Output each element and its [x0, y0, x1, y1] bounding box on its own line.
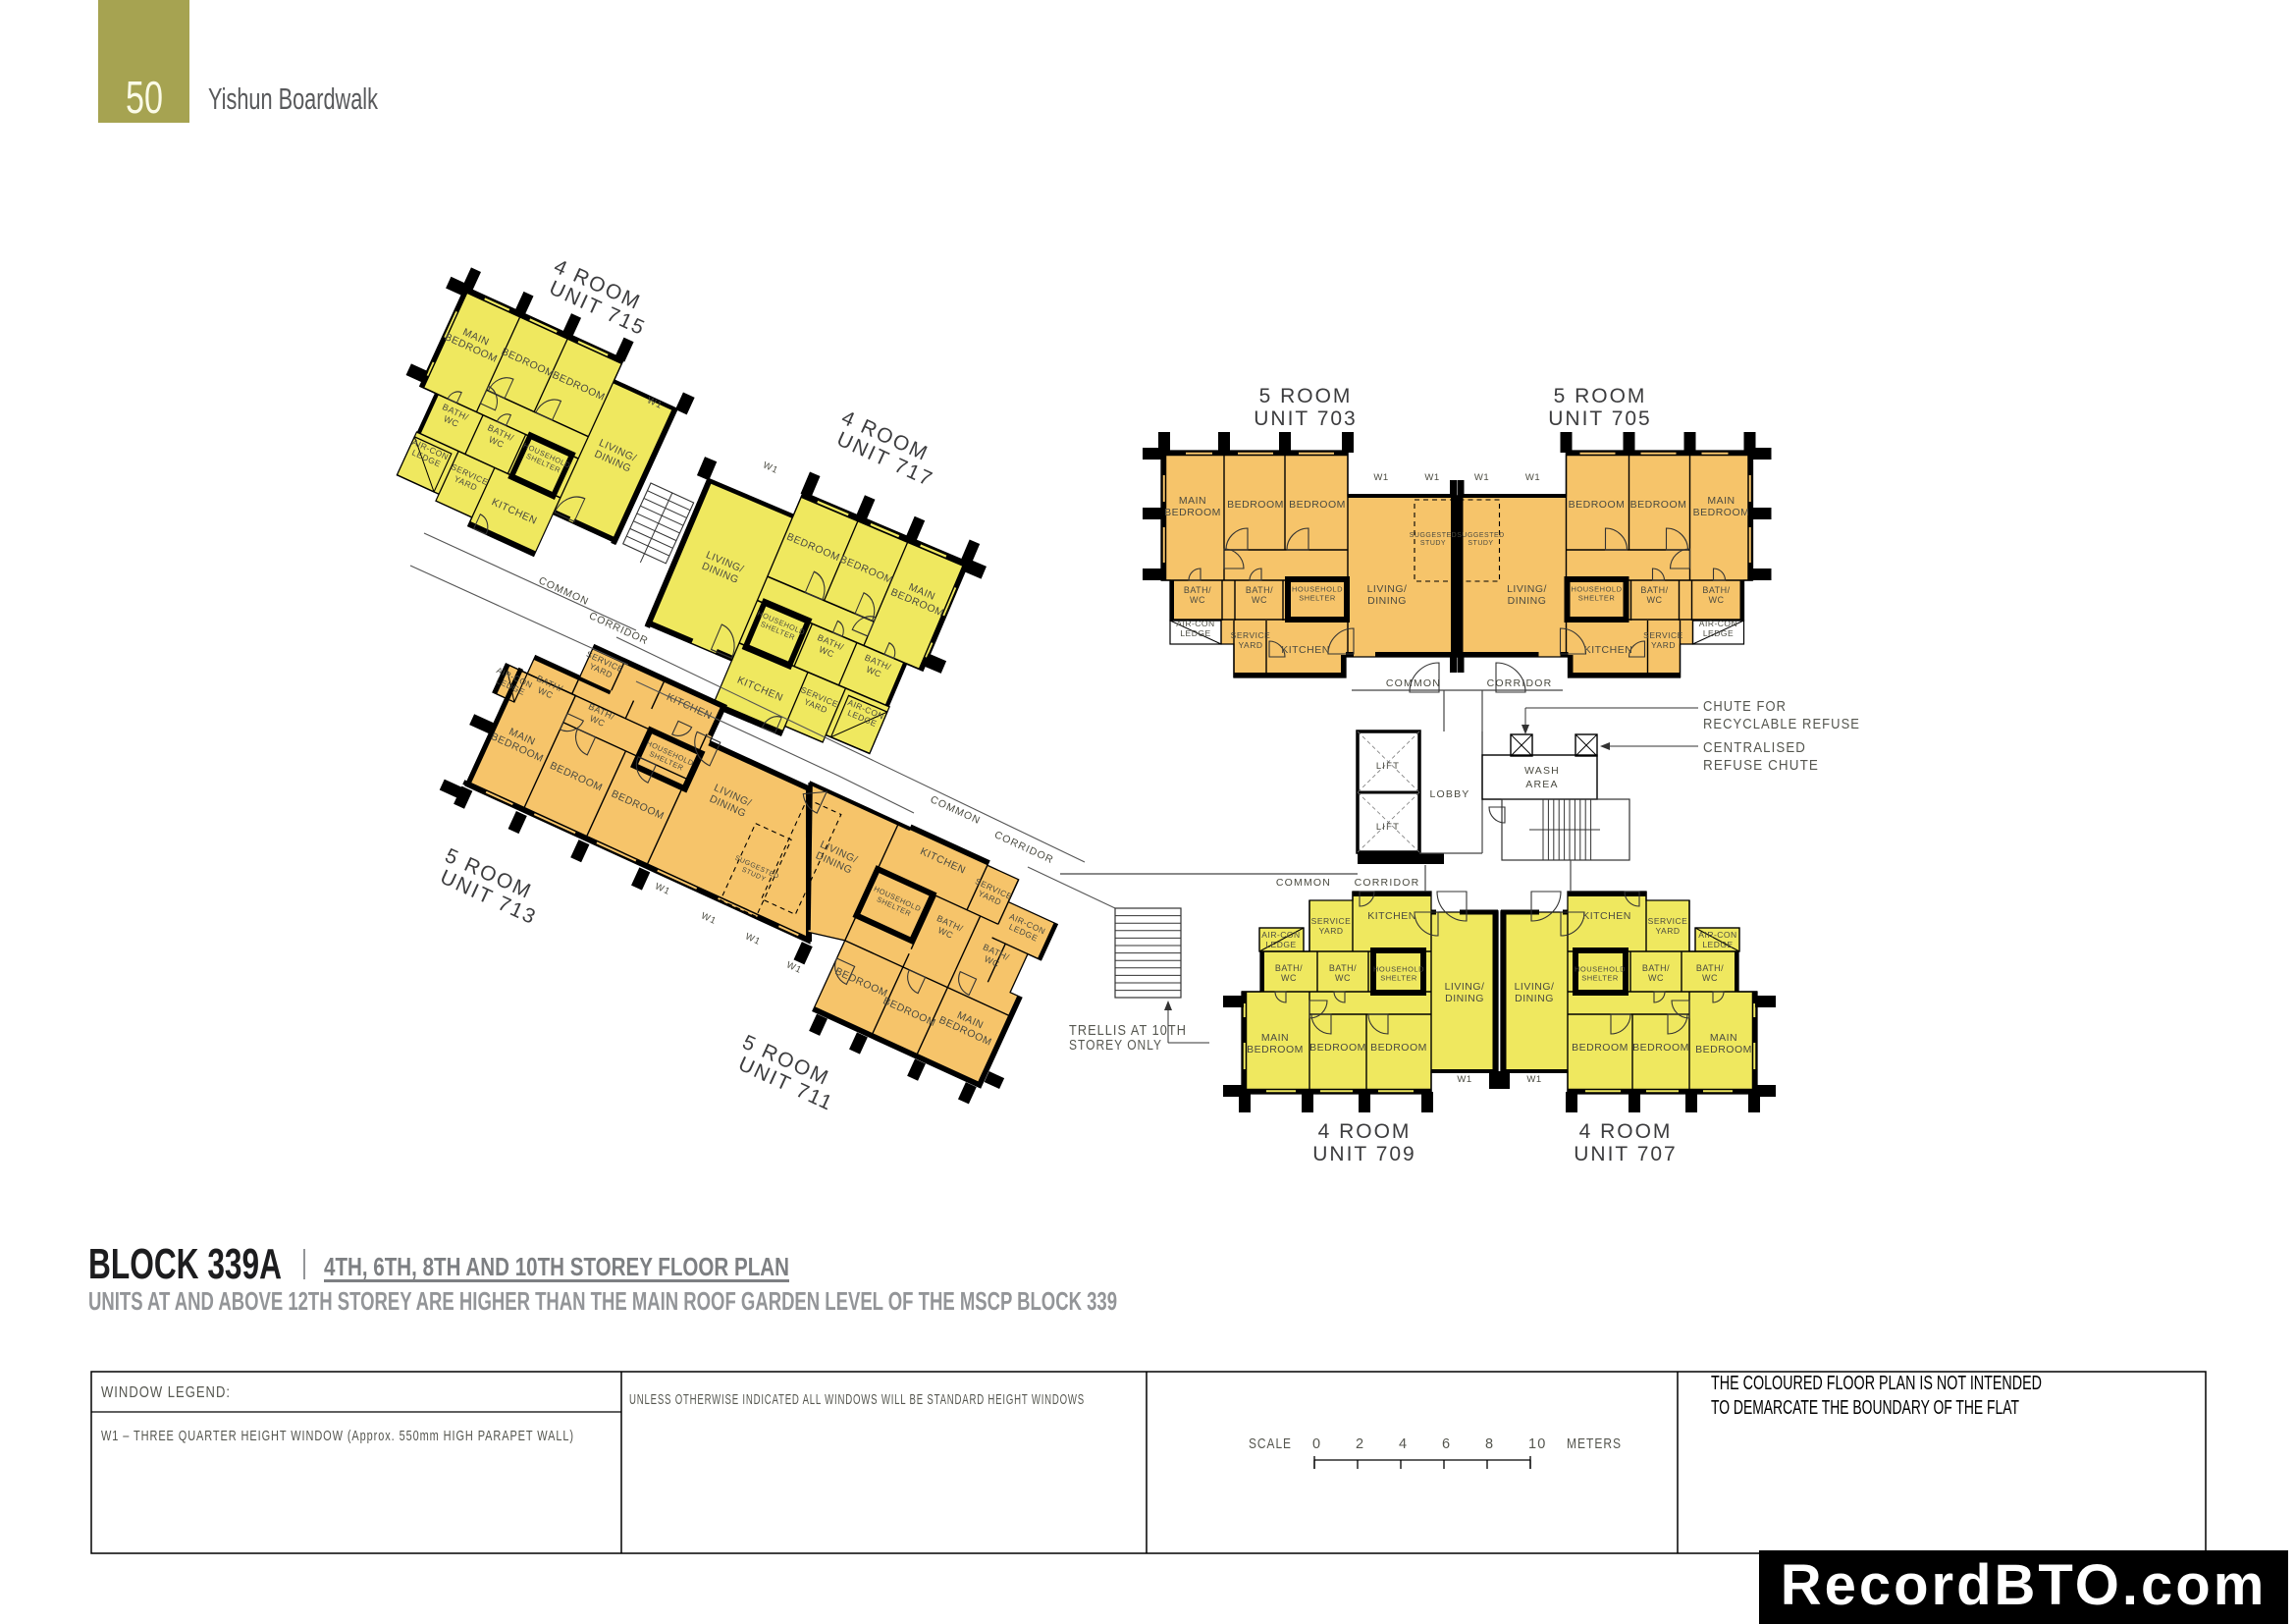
svg-text:5 ROOM: 5 ROOM [1259, 385, 1353, 407]
svg-text:MAIN: MAIN [1710, 1032, 1737, 1044]
svg-text:2: 2 [1356, 1436, 1364, 1452]
svg-text:KITCHEN: KITCHEN [1367, 910, 1416, 922]
svg-text:5 ROOM: 5 ROOM [1554, 385, 1647, 407]
svg-text:TRELLIS AT 10TH: TRELLIS AT 10TH [1069, 1023, 1187, 1039]
svg-text:UNIT 703: UNIT 703 [1254, 407, 1358, 430]
svg-text:50: 50 [126, 72, 163, 123]
svg-text:BATH/: BATH/ [1329, 963, 1357, 973]
svg-text:WC: WC [1281, 973, 1297, 983]
svg-text:W1: W1 [761, 460, 779, 476]
svg-text:AREA: AREA [1525, 779, 1558, 790]
svg-text:UNIT 709: UNIT 709 [1312, 1143, 1416, 1165]
svg-text:YARD: YARD [1651, 640, 1676, 650]
svg-text:LEDGE: LEDGE [1703, 628, 1734, 638]
svg-text:LIVING/: LIVING/ [1507, 583, 1547, 595]
svg-text:W1: W1 [1457, 1074, 1471, 1085]
svg-text:WC: WC [1709, 595, 1725, 605]
svg-text:REFUSE CHUTE: REFUSE CHUTE [1703, 758, 1819, 774]
svg-text:YARD: YARD [1319, 926, 1344, 936]
svg-text:BEDROOM: BEDROOM [1632, 1042, 1689, 1054]
svg-text:LIVING/: LIVING/ [1367, 583, 1408, 595]
svg-text:BEDROOM: BEDROOM [1309, 1042, 1366, 1054]
svg-text:W1: W1 [1474, 472, 1489, 483]
svg-text:WINDOW LEGEND:: WINDOW LEGEND: [101, 1384, 231, 1401]
svg-text:CORRIDOR: CORRIDOR [1355, 877, 1420, 889]
svg-text:6: 6 [1442, 1436, 1451, 1452]
svg-text:4 ROOM: 4 ROOM [1579, 1120, 1673, 1143]
svg-text:UNIT 705: UNIT 705 [1548, 407, 1652, 430]
svg-text:BEDROOM: BEDROOM [1695, 1044, 1752, 1056]
svg-text:RECYCLABLE REFUSE: RECYCLABLE REFUSE [1703, 717, 1860, 732]
svg-text:W1: W1 [699, 910, 718, 927]
svg-text:MAIN: MAIN [1261, 1032, 1289, 1044]
svg-text:AIR-CON: AIR-CON [1698, 930, 1736, 940]
svg-text:4TH, 6TH, 8TH AND 10TH STOREY: 4TH, 6TH, 8TH AND 10TH STOREY FLOOR PLAN [324, 1252, 789, 1281]
svg-text:YARD: YARD [1239, 640, 1263, 650]
svg-text:SHELTER: SHELTER [1380, 973, 1417, 982]
svg-text:CORRIDOR: CORRIDOR [992, 829, 1055, 866]
svg-text:BATH/: BATH/ [1184, 585, 1211, 595]
svg-text:W1: W1 [1526, 1074, 1541, 1085]
svg-text:WC: WC [1648, 973, 1664, 983]
svg-text:DINING: DINING [1508, 595, 1547, 607]
svg-text:STOREY ONLY: STOREY ONLY [1069, 1038, 1162, 1054]
svg-text:THE COLOURED FLOOR PLAN IS NOT: THE COLOURED FLOOR PLAN IS NOT INTENDED [1711, 1373, 2042, 1394]
svg-text:SERVICE: SERVICE [1643, 630, 1683, 640]
svg-text:WC: WC [1647, 595, 1663, 605]
svg-text:LEDGE: LEDGE [1180, 628, 1210, 638]
svg-text:SCALE: SCALE [1249, 1436, 1292, 1452]
svg-text:WC: WC [1702, 973, 1718, 983]
svg-text:SHELTER: SHELTER [1299, 593, 1336, 602]
svg-text:W1: W1 [1525, 472, 1540, 483]
svg-text:WC: WC [1252, 595, 1267, 605]
svg-text:SHELTER: SHELTER [1581, 973, 1619, 982]
svg-text:4 ROOM: 4 ROOM [1318, 1120, 1412, 1143]
svg-text:UNIT 707: UNIT 707 [1574, 1143, 1678, 1165]
svg-text:CENTRALISED: CENTRALISED [1703, 740, 1806, 756]
svg-text:BATH/: BATH/ [1696, 963, 1724, 973]
svg-text:BEDROOM: BEDROOM [1569, 499, 1626, 511]
svg-text:10: 10 [1528, 1436, 1547, 1452]
svg-text:COMMON: COMMON [1386, 677, 1441, 689]
svg-text:AIR-CON: AIR-CON [1699, 619, 1737, 628]
svg-text:SERVICE: SERVICE [1311, 916, 1352, 926]
svg-text:BEDROOM: BEDROOM [1247, 1044, 1304, 1056]
svg-text:W1: W1 [1373, 472, 1388, 483]
svg-text:W1: W1 [743, 931, 762, 947]
svg-text:SERVICE: SERVICE [1231, 630, 1271, 640]
svg-text:LEDGE: LEDGE [1702, 940, 1733, 949]
svg-text:BEDROOM: BEDROOM [1630, 499, 1687, 511]
svg-text:TO DEMARCATE THE BOUNDARY OF T: TO DEMARCATE THE BOUNDARY OF THE FLAT [1711, 1397, 2019, 1419]
svg-text:KITCHEN: KITCHEN [1582, 910, 1631, 922]
svg-text:BEDROOM: BEDROOM [1289, 499, 1346, 511]
svg-text:SHELTER: SHELTER [1578, 593, 1616, 602]
svg-text:W1: W1 [1424, 472, 1439, 483]
svg-text:8: 8 [1485, 1436, 1494, 1452]
svg-text:BATH/: BATH/ [1275, 963, 1303, 973]
svg-text:DINING: DINING [1515, 993, 1554, 1004]
svg-text:W1 – THREE QUARTER HEIGHT WIN: W1 – THREE QUARTER HEIGHT WINDOW (Approx… [101, 1429, 574, 1444]
svg-text:BEDROOM: BEDROOM [1370, 1042, 1427, 1054]
svg-text:BATH/: BATH/ [1642, 963, 1670, 973]
svg-text:YARD: YARD [1656, 926, 1681, 936]
svg-text:COMMON: COMMON [1276, 877, 1331, 889]
svg-text:CORRIDOR: CORRIDOR [587, 610, 650, 647]
svg-text:DINING: DINING [1445, 993, 1484, 1004]
svg-text:BEDROOM: BEDROOM [1572, 1042, 1629, 1054]
svg-text:LOBBY: LOBBY [1429, 788, 1469, 800]
svg-text:UNLESS OTHERWISE INDICATED ALL: UNLESS OTHERWISE INDICATED ALL WINDOWS W… [629, 1392, 1085, 1408]
svg-text:SERVICE: SERVICE [1648, 916, 1688, 926]
svg-text:LIFT: LIFT [1376, 822, 1400, 833]
svg-text:LIVING/: LIVING/ [1445, 981, 1485, 993]
svg-text:COMMON: COMMON [929, 793, 983, 827]
svg-text:BATH/: BATH/ [1640, 585, 1668, 595]
svg-text:DINING: DINING [1367, 595, 1407, 607]
svg-text:CORRIDOR: CORRIDOR [1487, 677, 1553, 689]
svg-text:AIR-CON: AIR-CON [1261, 930, 1300, 940]
svg-text:COMMON: COMMON [537, 574, 591, 608]
svg-text:CHUTE FOR: CHUTE FOR [1703, 699, 1787, 715]
svg-text:METERS: METERS [1567, 1436, 1622, 1452]
svg-text:LIFT: LIFT [1376, 761, 1400, 772]
svg-text:4: 4 [1399, 1436, 1408, 1452]
svg-text:UNITS AT AND ABOVE 12TH STOREY: UNITS AT AND ABOVE 12TH STOREY ARE HIGHE… [88, 1286, 1117, 1316]
svg-text:MAIN: MAIN [1179, 495, 1206, 507]
svg-text:KITCHEN: KITCHEN [1584, 644, 1633, 656]
svg-text:WASH: WASH [1524, 765, 1560, 777]
svg-text:SUGGESTED: SUGGESTED [1410, 532, 1457, 539]
svg-text:LIVING/: LIVING/ [1515, 981, 1555, 993]
svg-text:STUDY: STUDY [1468, 540, 1493, 547]
svg-text:BEDROOM: BEDROOM [1164, 507, 1221, 518]
svg-text:KITCHEN: KITCHEN [1281, 644, 1330, 656]
svg-text:WC: WC [1335, 973, 1351, 983]
svg-text:LEDGE: LEDGE [1265, 940, 1296, 949]
svg-text:BLOCK 339A: BLOCK 339A [88, 1240, 282, 1288]
svg-text:BATH/: BATH/ [1702, 585, 1730, 595]
svg-text:0: 0 [1312, 1436, 1321, 1452]
svg-text:W1: W1 [653, 881, 671, 897]
svg-text:Yishun Boardwalk: Yishun Boardwalk [208, 81, 378, 116]
svg-text:AIR-CON: AIR-CON [1176, 619, 1214, 628]
svg-text:MAIN: MAIN [1707, 495, 1735, 507]
svg-text:BEDROOM: BEDROOM [1693, 507, 1750, 518]
svg-text:BEDROOM: BEDROOM [1227, 499, 1284, 511]
svg-text:WC: WC [1190, 595, 1205, 605]
svg-text:STUDY: STUDY [1420, 540, 1446, 547]
svg-text:BATH/: BATH/ [1246, 585, 1273, 595]
svg-text:SUGGESTED: SUGGESTED [1457, 532, 1504, 539]
